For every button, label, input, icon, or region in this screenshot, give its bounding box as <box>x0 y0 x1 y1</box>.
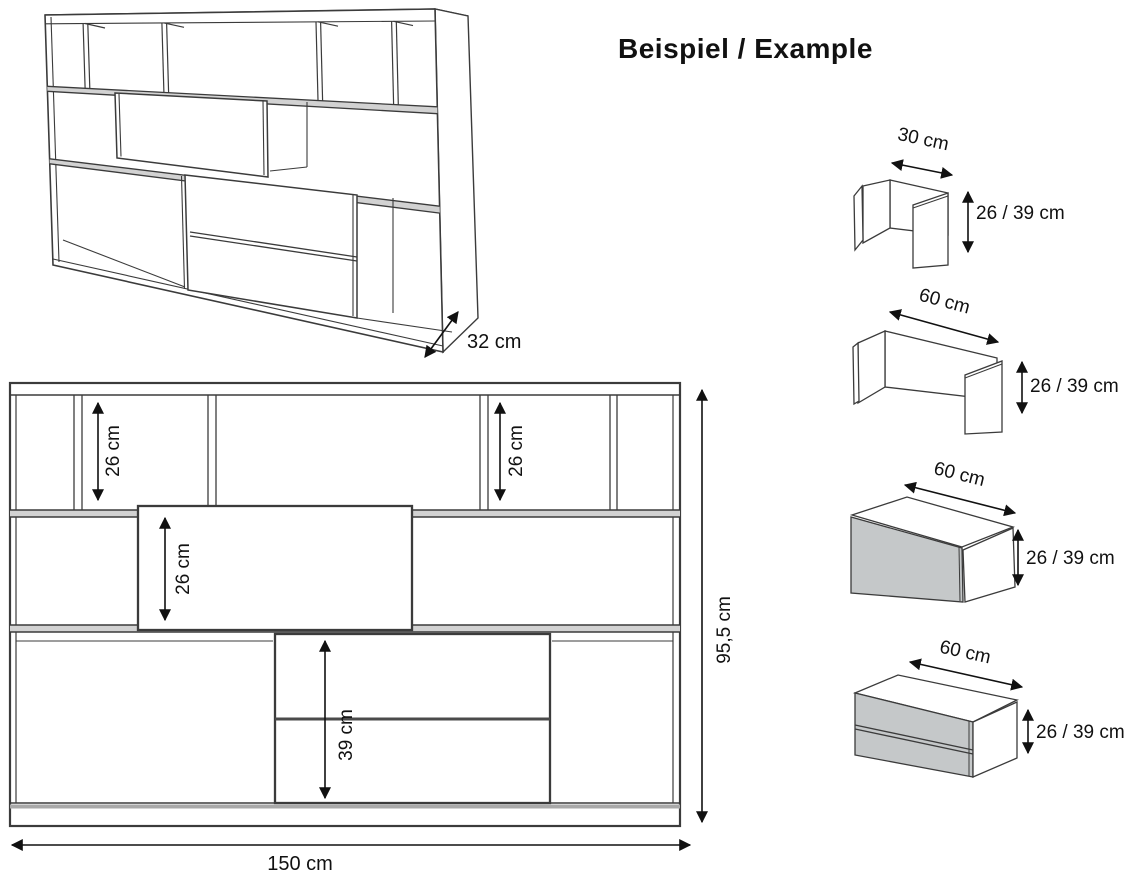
module-width-label: 30 cm <box>896 124 951 155</box>
dim-label-height: 95,5 cm <box>714 596 735 664</box>
drawer-module-60: 60 cm 26 / 39 cm <box>855 637 1125 777</box>
dim-label-drawers: 39 cm <box>336 709 357 761</box>
example-modules: 30 cm 26 / 39 cm 60 cm 26 / 39 cm 60 cm <box>830 100 1133 824</box>
dim-label-width: 150 cm <box>267 853 333 874</box>
dim-label-top-right: 26 cm <box>506 425 527 477</box>
module-height-label: 26 / 39 cm <box>1026 548 1115 569</box>
elevation-view: 26 cm 26 cm 26 cm 39 cm 95,5 cm 150 cm <box>0 378 740 874</box>
perspective-drawing: 32 cm <box>15 0 590 378</box>
module-width-label: 60 cm <box>932 458 987 491</box>
module-height-label: 26 / 39 cm <box>976 203 1065 224</box>
furniture-spec-sheet: 32 cm Beispiel / Example <box>0 0 1133 874</box>
open-module-60: 60 cm 26 / 39 cm <box>853 285 1119 434</box>
depth-dimension-label: 32 cm <box>467 331 521 353</box>
dim-label-top-left: 26 cm <box>103 425 124 477</box>
plinth-band <box>10 805 680 809</box>
module-height-label: 26 / 39 cm <box>1030 376 1119 397</box>
cabinet-front-face <box>45 9 443 352</box>
module-width-label: 60 cm <box>938 637 993 669</box>
module-width-label: 60 cm <box>917 285 972 319</box>
module-height-label: 26 / 39 cm <box>1036 722 1125 743</box>
page-title: Beispiel / Example <box>618 33 873 65</box>
dim-label-door: 26 cm <box>173 543 194 595</box>
door-module-60: 60 cm 26 / 39 cm <box>851 458 1115 602</box>
open-module-30: 30 cm 26 / 39 cm <box>854 124 1065 268</box>
module-width-arrow <box>892 163 952 175</box>
